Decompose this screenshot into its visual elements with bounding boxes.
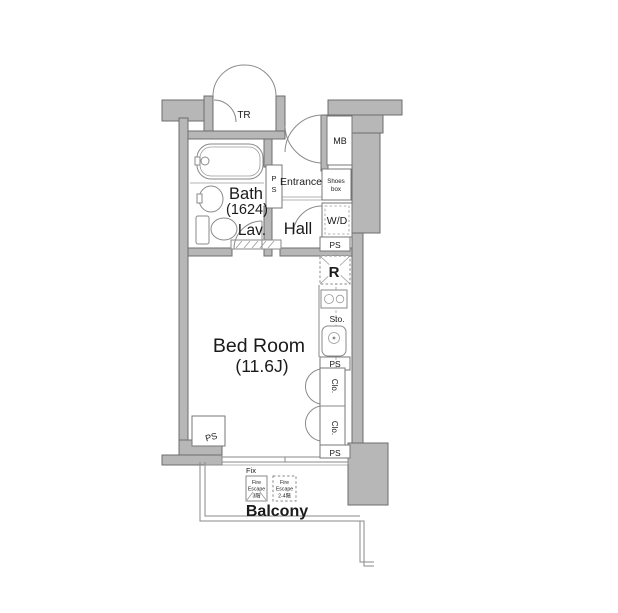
fire-escape-3f-line3: 3階 [252,492,260,500]
closet-door-arc-1 [305,369,320,404]
fire-escape-24f-line1: Fire [280,480,289,486]
toilet-tank [196,216,209,244]
sink-basin [322,326,346,356]
refrigerator-label: R [329,264,340,281]
mb-label: MB [333,136,347,146]
stove [321,290,347,308]
tr-inner-door-arc [214,100,236,122]
washbasin [199,186,223,212]
kitchen-sink [322,326,346,356]
wall-top-right-step [352,115,383,133]
fire-escape-24f-line2: Escape [276,487,293,493]
bathtub-tap [195,157,200,165]
shoes-box-label-1: Shoes [327,178,345,185]
closet-door-arc-2 [305,406,320,441]
sink-drain-icon [333,337,336,340]
floor-plan-svg: Bed Room (11.6J) Bath (1624) Lav. Hall E… [0,0,618,613]
tr-door-left-arc [213,65,244,96]
wall-hall-bedroom-left [188,248,232,256]
entrance-label: Entrance [280,176,322,188]
bath-label: Bath [229,185,263,203]
sliding-door [231,240,281,249]
washbasin-tap [197,194,202,203]
fire-escape-3f-line2: Escape [248,487,265,493]
shoes-box-label-2: box [331,186,342,193]
bathtub-faucet-icon [201,157,209,165]
bedroom-label: Bed Room [213,335,305,357]
hall-label: Hall [284,220,312,238]
balcony-label: Balcony [246,503,308,520]
wall-right-thin [352,233,363,445]
ps-label-lower: PS [329,448,341,458]
fire-escape-3f-line1: Fire [252,480,261,486]
lav-label: Lav. [238,222,266,239]
wall-right-thick [352,133,380,233]
wall-bath-top [188,131,285,139]
front-door-arc-2 [285,126,322,163]
front-door-arc-1 [285,115,322,152]
wall-bottom-right-block [348,443,388,505]
fix-window-label: Fix [246,466,256,475]
ps-label-mid: PS [329,359,341,369]
wall-bath-right-upper [264,139,272,167]
wall-top-right-bar [328,100,402,115]
wall-left [179,118,188,455]
toilet-bowl [211,218,237,240]
closet-label-2: Clo. [330,421,339,435]
wall-bottom-left-flange [162,455,222,465]
tr-door-right-arc [244,65,276,96]
ps-label-upper: PS [329,240,341,250]
pipe-s-label: S [271,185,276,194]
floor-plan-image: Bed Room (11.6J) Bath (1624) Lav. Hall E… [0,0,618,613]
bath-size-label: (1624) [226,202,268,218]
closet-label-1: Clo. [330,379,339,393]
wd-label: W/D [327,215,348,227]
pipe-p-label: P [271,174,276,183]
storage-label: Sto. [329,314,344,324]
fire-escape-24f-line3: 2-4階 [278,492,291,500]
balcony-right-edge [360,521,374,562]
bedroom-size-label: (11.6J) [235,356,288,376]
tr-label: TR [237,110,250,121]
